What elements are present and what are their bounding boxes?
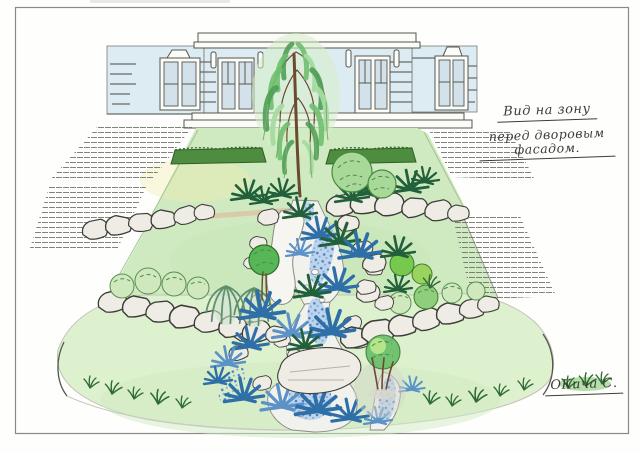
door-right <box>355 56 390 113</box>
annotation-view-note-line1: Вид на зону <box>497 102 598 123</box>
sketch-page: Вид на зону перед дворовым фасадом. ОКич… <box>0 0 640 453</box>
scan-artifact <box>90 0 230 3</box>
annotation-view-note-line2: перед дворовым фасадом. <box>479 126 616 161</box>
hedge-left <box>171 147 266 164</box>
window-right <box>435 47 468 110</box>
door-left <box>218 58 254 113</box>
signature: ОКича С. <box>545 377 624 397</box>
window-left <box>160 50 200 110</box>
